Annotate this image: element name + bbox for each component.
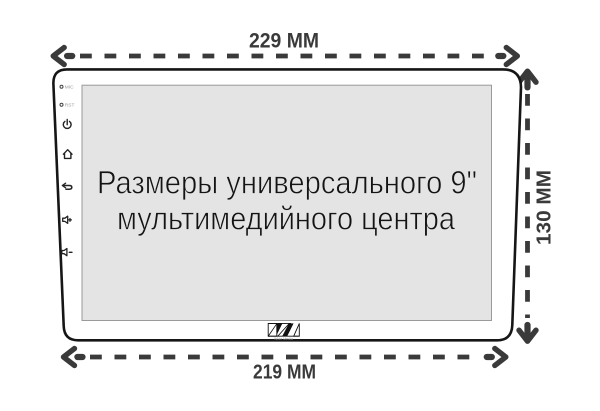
svg-text:MIC: MIC: [65, 85, 74, 91]
svg-text:130 ММ: 130 ММ: [532, 170, 555, 245]
svg-text:мультимедийного центра: мультимедийного центра: [117, 200, 455, 236]
svg-text:RST: RST: [65, 103, 75, 109]
svg-text:229 ММ: 229 ММ: [249, 30, 319, 53]
svg-text:Wide Media: Wide Media: [274, 337, 293, 341]
svg-text:219 ММ: 219 ММ: [253, 360, 316, 383]
svg-text:Размеры универсального 9": Размеры универсального 9": [97, 164, 477, 200]
